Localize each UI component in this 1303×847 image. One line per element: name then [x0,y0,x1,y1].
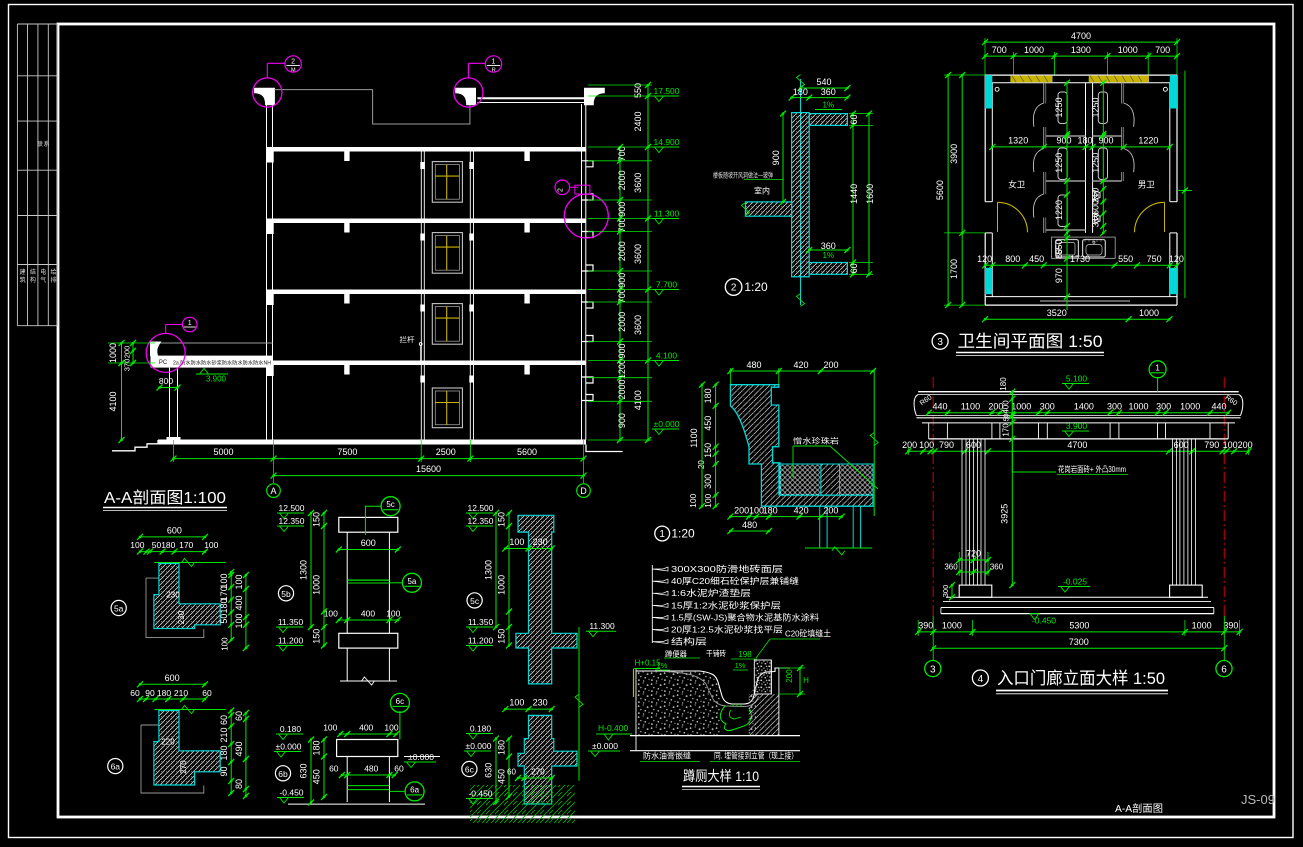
svg-text:600: 600 [165,673,180,683]
svg-text:卫生间平面图 1:50: 卫生间平面图 1:50 [958,332,1103,351]
svg-text:180: 180 [219,745,229,760]
svg-text:±0.000: ±0.000 [408,752,434,762]
svg-text:蹲厕大样 1:10: 蹲厕大样 1:10 [683,768,759,784]
svg-text:180: 180 [312,740,322,755]
svg-text:700: 700 [992,45,1007,55]
svg-text:390: 390 [918,621,933,631]
svg-text:±0.000: ±0.000 [466,741,492,751]
svg-text:2: 2 [558,188,565,192]
svg-text:给: 给 [50,268,56,276]
svg-text:3520: 3520 [1047,308,1067,318]
svg-text:220: 220 [161,738,175,747]
svg-text:100: 100 [204,540,218,550]
svg-text:400: 400 [234,595,244,610]
svg-text:3.900: 3.900 [1066,421,1088,431]
svg-text:900: 900 [617,202,627,217]
svg-text:电: 电 [40,268,46,276]
svg-text:100: 100 [234,613,244,628]
svg-text:2500: 2500 [436,447,456,457]
svg-text:构: 构 [30,276,36,284]
svg-text:50: 50 [152,540,162,550]
svg-text:1200: 1200 [617,359,627,379]
svg-text:400: 400 [361,609,375,619]
svg-text:60: 60 [329,764,339,774]
svg-text:300: 300 [1107,402,1122,412]
svg-text:11.200: 11.200 [468,636,494,646]
svg-text:720: 720 [966,549,981,559]
svg-text:2400: 2400 [633,111,643,131]
svg-text:2000: 2000 [617,170,627,190]
svg-text:7300: 7300 [1069,637,1089,647]
svg-text:5a: 5a [114,604,124,614]
svg-text:900: 900 [617,273,627,288]
svg-text:1%: 1% [735,661,746,670]
svg-text:4700: 4700 [1067,440,1087,450]
svg-text:370: 370 [123,359,132,372]
svg-text:筑: 筑 [20,276,26,284]
svg-text:5c: 5c [386,500,394,509]
svg-text:800: 800 [159,376,173,386]
svg-text:180: 180 [703,388,713,403]
svg-text:1220: 1220 [1138,136,1158,146]
svg-text:790: 790 [1204,440,1219,450]
svg-text:300: 300 [1040,402,1055,412]
svg-text:200: 200 [123,346,132,359]
svg-text:同. 埋管接到立管（现上接）: 同. 埋管接到立管（现上接） [714,751,798,761]
svg-text:100: 100 [919,440,934,450]
svg-text:1600: 1600 [865,184,875,204]
svg-text:1250: 1250 [1054,153,1064,173]
svg-text:600: 600 [361,538,376,548]
svg-text:180: 180 [1077,136,1092,146]
svg-text:2a.防水防水防水砂浆防水防水防水防水NH: 2a.防水防水防水砂浆防水防水防水防水NH [173,360,271,367]
svg-text:14.900: 14.900 [654,137,680,147]
svg-text:H-0.400: H-0.400 [598,723,629,733]
svg-text:±0.000: ±0.000 [276,742,302,752]
svg-text:11.200: 11.200 [278,636,304,646]
svg-text:1:20: 1:20 [671,527,695,541]
svg-text:230: 230 [533,698,548,708]
svg-text:100: 100 [386,609,400,619]
svg-text:270: 270 [531,768,545,777]
svg-text:1440: 1440 [849,184,859,204]
svg-text:2: 2 [291,59,295,66]
svg-text:11.300: 11.300 [589,621,615,631]
svg-text:干铺砖: 干铺砖 [706,648,726,658]
svg-text:480: 480 [746,360,761,370]
svg-text:750: 750 [1147,254,1162,264]
svg-text:5000: 5000 [213,447,233,457]
svg-text:7500: 7500 [337,447,357,457]
svg-text:5b: 5b [281,589,291,599]
svg-text:100: 100 [509,698,524,708]
svg-text:480: 480 [742,520,757,530]
svg-text:80: 80 [234,779,244,789]
svg-text:5300: 5300 [1069,621,1089,631]
svg-text:D: D [580,486,587,496]
svg-text:360: 360 [821,241,836,251]
svg-text:6: 6 [1221,664,1227,675]
svg-text:结构层: 结构层 [671,637,707,647]
svg-text:4700: 4700 [1071,31,1091,41]
svg-text:630: 630 [299,763,309,778]
svg-text:700: 700 [1155,45,1170,55]
svg-text:60: 60 [507,768,516,777]
svg-text:1700: 1700 [949,259,959,279]
svg-text:A: A [270,486,276,496]
svg-text:300X300防滑地砖面层: 300X300防滑地砖面层 [671,564,783,574]
svg-text:1730: 1730 [1070,254,1090,264]
svg-text:200: 200 [823,360,838,370]
svg-text:1400: 1400 [1074,402,1094,412]
svg-text:男卫: 男卫 [1138,180,1155,190]
svg-text:排: 排 [50,276,56,284]
svg-text:1000: 1000 [1118,45,1138,55]
svg-text:180: 180 [763,506,778,516]
svg-text:360: 360 [990,563,1004,572]
svg-text:3: 3 [930,664,936,675]
svg-text:440: 440 [932,402,947,412]
svg-text:结: 结 [30,268,36,276]
svg-text:H: H [803,676,809,685]
svg-text:11.350: 11.350 [468,617,494,627]
svg-text:230: 230 [166,591,180,600]
svg-text:3600: 3600 [633,244,643,264]
svg-text:入口门廊立面大样 1:50: 入口门廊立面大样 1:50 [997,669,1165,688]
svg-text:PC: PC [159,360,168,366]
svg-text:120: 120 [1169,254,1184,264]
svg-text:420: 420 [794,506,809,516]
svg-text:900: 900 [617,343,627,358]
svg-text:A-A剖面图: A-A剖面图 [1115,802,1163,815]
svg-text:400: 400 [1001,400,1010,414]
svg-text:1000: 1000 [1192,621,1212,631]
svg-text:4100: 4100 [108,391,118,411]
svg-text:210: 210 [219,727,229,742]
svg-text:0.180: 0.180 [280,724,302,734]
svg-text:17.500: 17.500 [654,86,680,96]
svg-text:1%: 1% [823,101,835,110]
svg-text:1000: 1000 [942,621,962,631]
svg-text:310: 310 [1091,212,1101,227]
svg-text:300: 300 [941,585,950,598]
svg-text:100: 100 [509,537,524,547]
svg-text:1000: 1000 [312,575,322,595]
svg-text:7.700: 7.700 [656,280,678,290]
svg-text:210: 210 [174,688,188,698]
svg-text:15600: 15600 [416,464,441,474]
svg-text:60: 60 [234,711,244,721]
svg-text:-0.025: -0.025 [1063,577,1087,587]
svg-text:4100: 4100 [633,390,643,410]
svg-text:150: 150 [703,443,713,458]
svg-text:4: 4 [978,674,984,685]
svg-text:90: 90 [145,688,155,698]
svg-text:气: 气 [40,276,46,284]
svg-text:200: 200 [902,440,917,450]
svg-text:1%: 1% [657,661,668,670]
svg-text:12.350: 12.350 [468,516,494,526]
svg-text:2000: 2000 [617,312,627,332]
svg-text:0.180: 0.180 [470,724,492,734]
svg-text:-0.450: -0.450 [279,788,303,798]
svg-text:建: 建 [20,268,26,276]
svg-text:1:20: 1:20 [744,280,768,294]
svg-text:拦杆: 拦杆 [400,335,415,344]
svg-text:300: 300 [1156,402,1171,412]
svg-text:600: 600 [167,526,182,536]
svg-text:180: 180 [157,688,171,698]
svg-text:700: 700 [617,288,627,303]
svg-text:女卫: 女卫 [1008,180,1025,190]
svg-text:150: 150 [497,512,507,527]
svg-text:50: 50 [219,614,229,624]
svg-text:1: 1 [492,59,496,66]
svg-text:1250: 1250 [1091,153,1101,173]
svg-text:1000: 1000 [497,575,507,595]
svg-text:1:6水泥炉渣垫层: 1:6水泥炉渣垫层 [671,588,751,598]
svg-text:970: 970 [1054,268,1064,283]
svg-text:60: 60 [394,764,404,774]
svg-text:5.100: 5.100 [1066,374,1088,384]
svg-text:3600: 3600 [633,315,643,335]
svg-text:楼板随坡开风洞做法—玻弹: 楼板随坡开风洞做法—玻弹 [713,171,773,180]
svg-text:3925: 3925 [1000,504,1010,524]
svg-text:490: 490 [234,741,244,756]
svg-text:6c: 6c [465,765,475,775]
svg-text:5a: 5a [407,577,416,586]
svg-text:±0.000: ±0.000 [654,419,680,429]
svg-text:4.100: 4.100 [656,351,678,361]
svg-text:200: 200 [785,669,794,683]
svg-text:180: 180 [999,377,1008,391]
svg-text:100: 100 [323,723,337,733]
svg-text:390: 390 [1223,621,1238,631]
svg-text:2: 2 [731,283,737,294]
svg-text:100: 100 [1223,440,1238,450]
svg-text:50: 50 [1003,414,1010,422]
svg-text:540: 540 [816,77,831,87]
svg-text:60: 60 [130,688,140,698]
svg-text:60: 60 [219,715,229,725]
svg-text:1%: 1% [823,251,835,260]
svg-text:300: 300 [703,474,713,489]
svg-text:420: 420 [793,360,808,370]
svg-text:120: 120 [977,254,992,264]
svg-text:1250: 1250 [1091,97,1101,117]
svg-text:170: 170 [179,540,193,550]
svg-text:790: 790 [939,440,954,450]
svg-text:蹲便器: 蹲便器 [665,649,687,659]
svg-text:150: 150 [312,512,322,527]
svg-text:480: 480 [364,764,378,774]
svg-text:2000: 2000 [617,241,627,261]
svg-text:5600: 5600 [517,447,537,457]
svg-text:150: 150 [497,629,507,644]
svg-text:1000: 1000 [1128,402,1148,412]
svg-text:1000: 1000 [1139,308,1159,318]
svg-text:1100: 1100 [689,428,699,447]
svg-text:450: 450 [312,769,322,784]
svg-text:R: R [492,68,496,74]
svg-text:1300: 1300 [299,560,309,580]
svg-text:180: 180 [161,540,175,550]
svg-text:360: 360 [821,87,836,97]
svg-text:憎水珍珠岩: 憎水珍珠岩 [793,436,840,446]
svg-text:180: 180 [793,87,808,97]
svg-text:200: 200 [823,506,838,516]
svg-text:-0.450: -0.450 [468,789,492,799]
svg-text:400: 400 [359,723,373,733]
svg-text:1000: 1000 [1024,45,1044,55]
svg-text:1: 1 [188,320,192,327]
svg-text:1: 1 [1155,363,1160,372]
svg-text:系: 系 [43,140,49,148]
svg-text:1000: 1000 [1180,402,1200,412]
svg-text:150: 150 [312,629,322,644]
svg-text:1300: 1300 [1071,45,1091,55]
svg-text:1320: 1320 [1008,136,1028,146]
svg-text:15厚1:2水泥砂浆保护层: 15厚1:2水泥砂浆保护层 [671,600,781,610]
svg-text:180: 180 [219,598,229,613]
svg-text:450: 450 [703,416,713,431]
svg-text:1250: 1250 [1054,97,1064,117]
svg-text:12.350: 12.350 [279,516,305,526]
svg-text:270: 270 [179,760,188,774]
svg-text:900: 900 [771,150,781,165]
svg-text:1.5厚(SW-JS)聚合物水泥基防水涂料: 1.5厚(SW-JS)聚合物水泥基防水涂料 [671,612,820,622]
svg-text:230: 230 [533,537,548,547]
svg-text:100: 100 [234,574,244,589]
svg-text:1000: 1000 [108,343,118,363]
svg-text:3: 3 [937,337,943,348]
svg-text:花岗岩面砖+ 外凸30mm: 花岗岩面砖+ 外凸30mm [1058,464,1126,474]
svg-text:11.350: 11.350 [278,617,304,627]
svg-text:1300: 1300 [484,560,494,580]
svg-text:1: 1 [659,529,665,540]
svg-text:3.900: 3.900 [206,375,227,384]
svg-text:6c: 6c [396,697,404,706]
svg-text:-0.450: -0.450 [1032,616,1056,626]
svg-text:C20砼填缝土: C20砼填缝土 [785,629,831,639]
svg-text:M: M [291,68,296,74]
svg-text:80: 80 [1054,249,1064,259]
svg-text:550: 550 [1118,254,1133,264]
svg-text:40厚C20细石砼保护层兼铺缝: 40厚C20细石砼保护层兼铺缝 [671,576,800,586]
svg-text:800: 800 [1005,254,1020,264]
svg-text:700: 700 [617,146,627,161]
svg-text:450: 450 [1029,254,1044,264]
svg-text:JS-09: JS-09 [1241,792,1275,807]
svg-text:600: 600 [1174,440,1189,450]
svg-text:198: 198 [738,650,752,659]
svg-text:5c: 5c [470,596,480,606]
svg-text:440: 440 [1211,402,1226,412]
svg-text:6a: 6a [111,762,121,772]
svg-text:100: 100 [688,493,698,507]
svg-text:3900: 3900 [949,144,959,164]
svg-text:200: 200 [1238,440,1253,450]
svg-text:100: 100 [384,723,398,733]
svg-text:90: 90 [219,766,229,776]
svg-text:6b: 6b [278,769,288,779]
svg-text:60: 60 [202,688,212,698]
svg-text:200: 200 [734,506,749,516]
svg-text:20厚1:2.5水泥砂浆找平层: 20厚1:2.5水泥砂浆找平层 [671,625,783,635]
svg-text:2000: 2000 [617,379,627,399]
svg-text:100: 100 [703,493,713,507]
svg-text:联: 联 [37,140,43,148]
svg-text:60: 60 [849,263,859,273]
svg-text:11.300: 11.300 [654,209,680,219]
svg-text:450: 450 [497,769,507,784]
svg-text:60: 60 [849,114,859,124]
svg-text:3600: 3600 [633,173,643,193]
svg-text:12.500: 12.500 [468,503,494,513]
svg-text:630: 630 [484,763,494,778]
svg-text:700: 700 [617,217,627,232]
svg-text:230: 230 [177,610,186,624]
svg-text:6a: 6a [410,785,419,794]
svg-text:±0.000: ±0.000 [592,741,618,751]
svg-text:170: 170 [1001,423,1010,437]
svg-text:100: 100 [221,637,230,651]
svg-text:12.500: 12.500 [279,503,305,513]
svg-text:1100: 1100 [961,402,980,412]
svg-text:100: 100 [130,540,144,550]
svg-text:360: 360 [944,563,958,572]
svg-text:5600: 5600 [935,180,945,200]
svg-text:1000: 1000 [1011,402,1031,412]
svg-text:1220: 1220 [1054,200,1064,220]
svg-text:900: 900 [617,413,627,428]
svg-text:180: 180 [497,740,507,755]
svg-text:A-A剖面图1:100: A-A剖面图1:100 [104,489,226,507]
svg-text:室内: 室内 [754,186,770,196]
svg-text:防水油膏嵌缝: 防水油膏嵌缝 [643,751,691,761]
